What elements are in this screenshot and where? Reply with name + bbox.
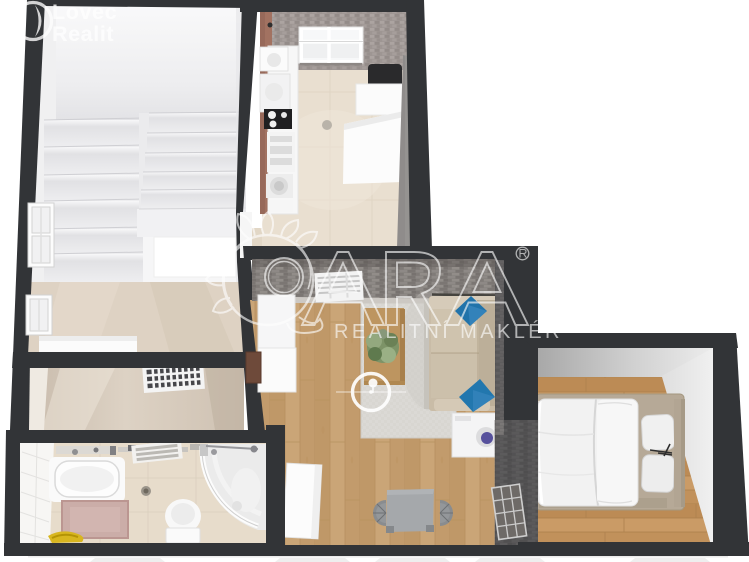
svg-text:Realit: Realit [52, 22, 114, 46]
svg-text:Lovec: Lovec [52, 0, 117, 24]
svg-text:REALITNÍ MAKLÉŘ: REALITNÍ MAKLÉŘ [334, 320, 563, 343]
